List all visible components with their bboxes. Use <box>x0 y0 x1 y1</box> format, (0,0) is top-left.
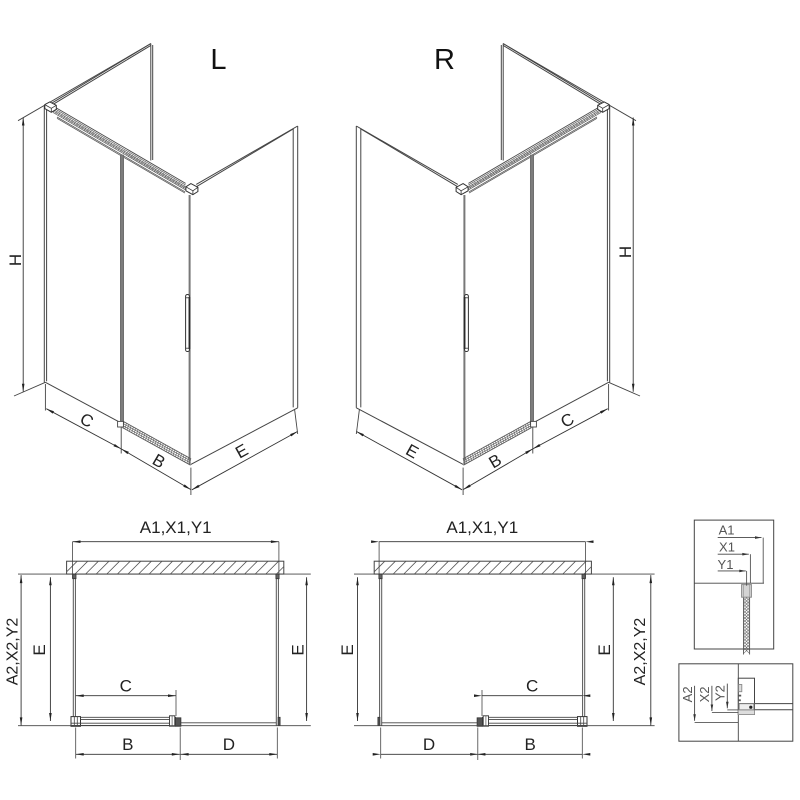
svg-text:R: R <box>434 44 455 76</box>
svg-text:A1,X1,Y1: A1,X1,Y1 <box>446 518 518 537</box>
svg-text:C: C <box>120 677 132 696</box>
svg-text:B: B <box>525 735 536 754</box>
svg-text:E: E <box>30 644 49 655</box>
svg-text:X1: X1 <box>719 539 735 554</box>
svg-text:H: H <box>6 254 25 266</box>
svg-text:A2,X2,Y2: A2,X2,Y2 <box>632 618 649 686</box>
svg-text:E: E <box>595 644 614 655</box>
svg-text:Y1: Y1 <box>718 557 734 572</box>
svg-text:D: D <box>423 735 435 754</box>
svg-text:A2: A2 <box>680 686 695 702</box>
svg-text:D: D <box>223 735 235 754</box>
svg-text:A1: A1 <box>719 523 735 538</box>
svg-text:L: L <box>210 44 226 76</box>
svg-text:C: C <box>526 677 538 696</box>
svg-text:E: E <box>338 644 357 655</box>
svg-text:E: E <box>289 644 308 655</box>
svg-text:A2,X2,Y2: A2,X2,Y2 <box>4 618 21 686</box>
svg-text:Y2: Y2 <box>713 685 728 701</box>
svg-text:B: B <box>122 735 133 754</box>
svg-text:X2: X2 <box>697 686 712 702</box>
svg-text:A1,X1,Y1: A1,X1,Y1 <box>140 518 212 537</box>
svg-text:H: H <box>616 246 635 258</box>
